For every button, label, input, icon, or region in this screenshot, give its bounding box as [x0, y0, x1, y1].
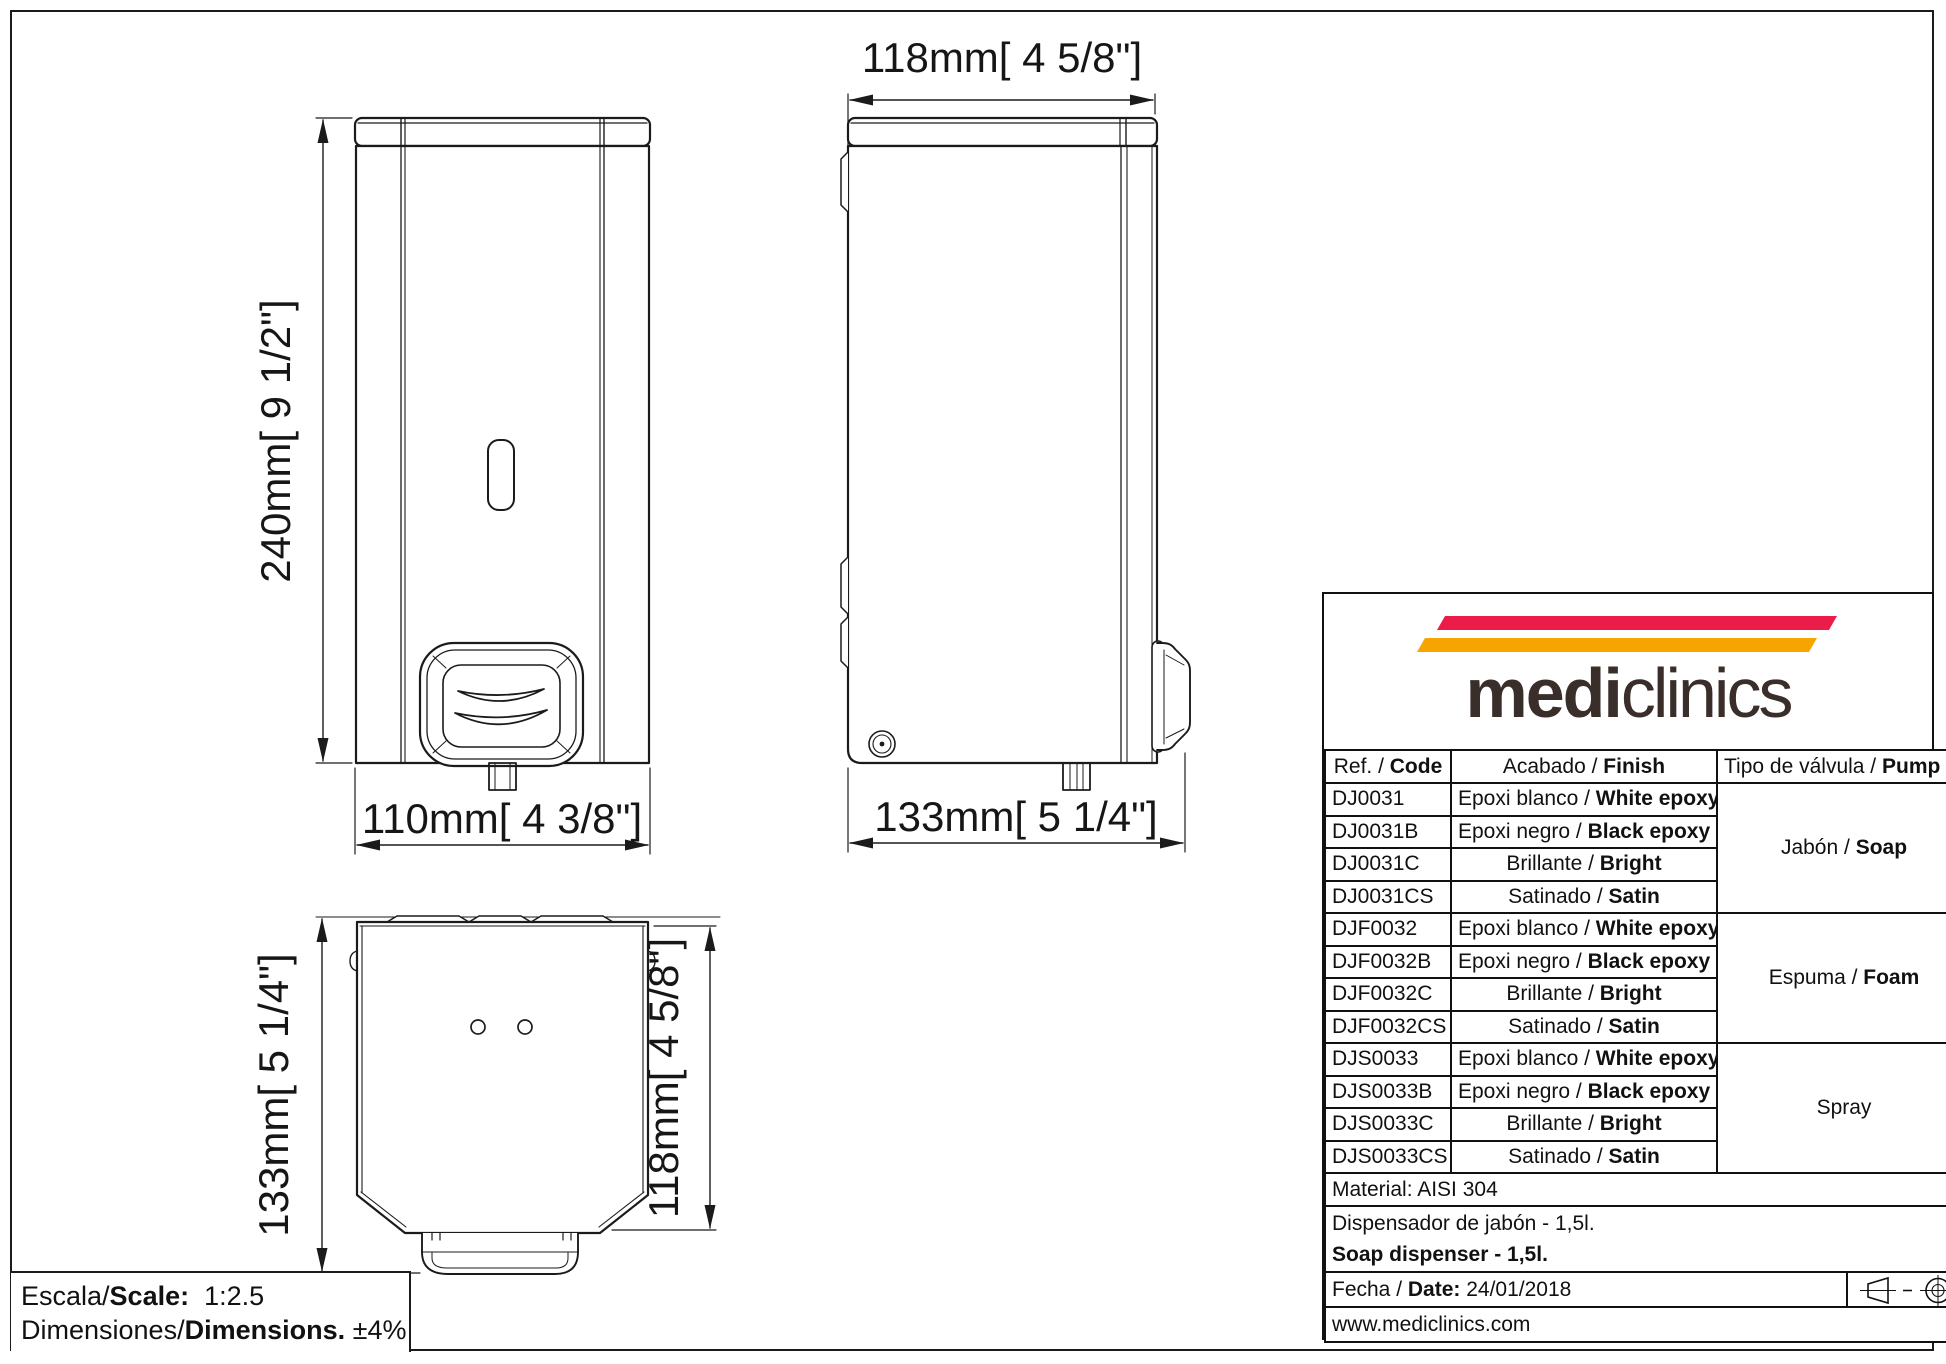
push-button-front — [420, 643, 583, 766]
mediclinics-logo: mediclinics — [1324, 594, 1932, 749]
side-top-label: 118mm[ 4 5/8"] — [862, 34, 1142, 81]
product-name-es: Dispensador de jabón - 1,5l. — [1332, 1208, 1946, 1239]
datasheet-page: 240mm[ 9 1/2"] 110mm[ 4 3/8"] 118mm[ 4 5… — [0, 0, 1946, 1364]
front-width-label: 110mm[ 4 3/8"] — [362, 795, 642, 842]
side-view — [841, 94, 1190, 852]
website: www.mediclinics.com — [1325, 1307, 1946, 1342]
top-left-label: 133mm[ 5 1/4"] — [250, 953, 297, 1236]
push-button-top — [422, 1233, 578, 1274]
date-value: 24/01/2018 — [1460, 1278, 1571, 1301]
date-label: Fecha / — [1332, 1278, 1408, 1301]
pump-group-foam: Espuma / Foam — [1717, 913, 1946, 1043]
first-angle-projection-icon — [1854, 1273, 1946, 1307]
top-right-label: 118mm[ 4 5/8"] — [640, 938, 687, 1218]
spec-table: Ref. / Code Acabado / Finish Tipo de vál… — [1324, 749, 1946, 1343]
scale-box: Escala/Scale: 1:2.5 Dimensiones/Dimensio… — [11, 1271, 411, 1352]
website-row: www.mediclinics.com — [1325, 1307, 1946, 1342]
tolerance-line: Dimensiones/Dimensions. ±4% — [21, 1313, 409, 1347]
title-block: mediclinics Ref. / Code Acabado / Finish… — [1322, 592, 1934, 1340]
header-finish: Acabado / — [1503, 755, 1603, 778]
header-ref: Ref. / — [1334, 755, 1390, 778]
date-row: Fecha / Date: 24/01/2018 — [1325, 1272, 1946, 1307]
dim-front-height — [316, 118, 352, 763]
logo-stripes-icon — [1413, 615, 1843, 655]
projection-symbol-box — [1846, 1273, 1946, 1306]
pump-group-spray: Spray — [1717, 1043, 1946, 1173]
spout-side — [1063, 763, 1090, 790]
push-button-side — [1152, 641, 1190, 752]
logo-text-clinics: clinics — [1621, 654, 1791, 732]
header-pump: Tipo de válvula / — [1724, 755, 1882, 778]
scale-line: Escala/Scale: 1:2.5 — [21, 1279, 409, 1313]
table-row: DJ0031 Epoxi blanco / White epoxy Jabón … — [1325, 783, 1946, 816]
product-name-en: Soap dispenser - 1,5l. — [1332, 1239, 1946, 1270]
side-bottom-label: 133mm[ 5 1/4"] — [874, 793, 1157, 840]
logo-text-medi: medi — [1466, 654, 1621, 732]
lock-screw — [869, 731, 895, 757]
table-row: DJF0032 Epoxi blanco / White epoxy Espum… — [1325, 913, 1946, 946]
table-row: DJS0033 Epoxi blanco / White epoxy Spray — [1325, 1043, 1946, 1076]
product-row: Dispensador de jabón - 1,5l. Soap dispen… — [1325, 1206, 1946, 1272]
material-row: Material: AISI 304 — [1325, 1173, 1946, 1206]
pump-group-soap: Jabón / Soap — [1717, 783, 1946, 913]
spec-header-row: Ref. / Code Acabado / Finish Tipo de vál… — [1325, 750, 1946, 783]
front-view — [316, 118, 650, 854]
front-height-label: 240mm[ 9 1/2"] — [252, 299, 299, 582]
